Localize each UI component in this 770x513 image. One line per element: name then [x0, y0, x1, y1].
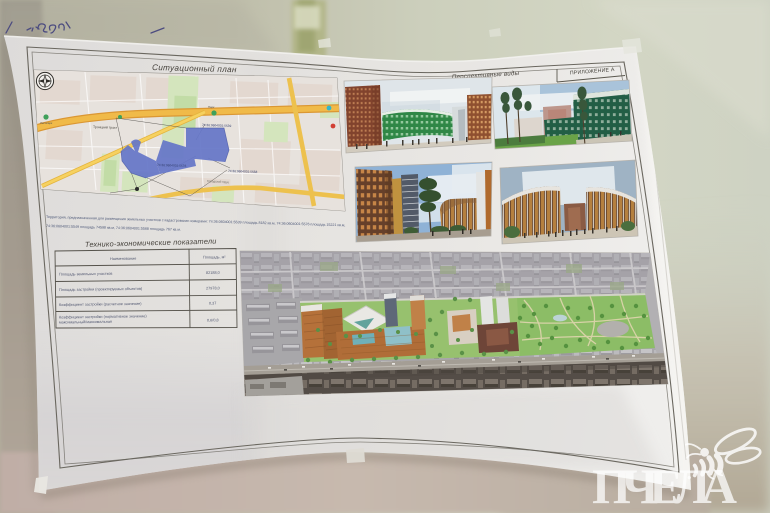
svg-text:82188,0: 82188,0 [206, 271, 220, 275]
svg-text:максимальный/максимальная: максимальный/максимальная [59, 320, 112, 325]
svg-text:Лесопарк: Лесопарк [40, 121, 53, 125]
svg-text:Площадь земельных участков: Площадь земельных участков [59, 272, 112, 277]
svg-text:Парк: Парк [208, 105, 215, 109]
svg-text:Площадь, м²: Площадь, м² [203, 255, 226, 259]
svg-text:0,37: 0,37 [209, 301, 216, 305]
svg-text:Наименование: Наименование [110, 257, 136, 261]
svg-text:27978,0: 27978,0 [206, 286, 220, 290]
svg-text:0,6/0,8: 0,6/0,8 [207, 318, 219, 322]
svg-text:Троицкий тракт: Троицкий тракт [93, 125, 118, 130]
svg-text:ПЧЕЛА: ПЧЕЛА [592, 458, 737, 513]
